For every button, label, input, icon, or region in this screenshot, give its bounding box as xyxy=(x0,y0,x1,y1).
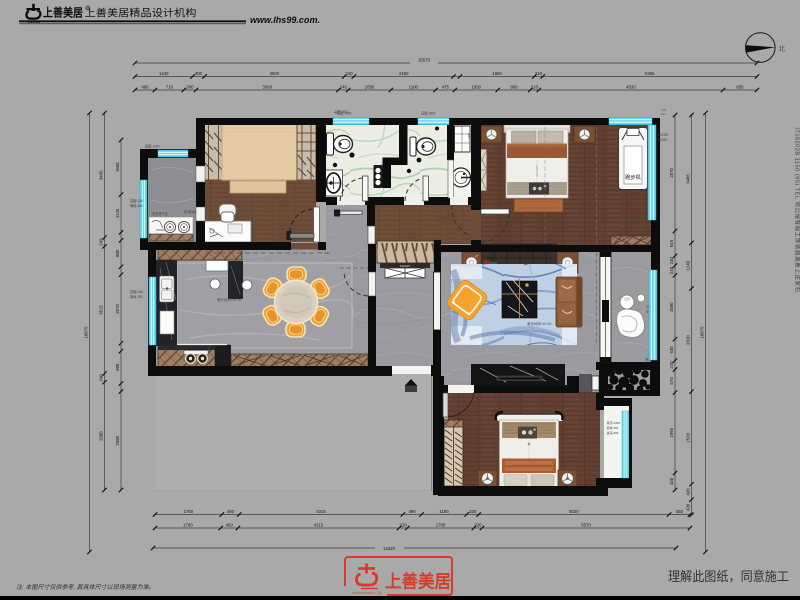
svg-text:1780: 1780 xyxy=(436,522,446,527)
svg-text:2870: 2870 xyxy=(669,168,674,178)
svg-text:2980: 2980 xyxy=(115,435,120,445)
svg-text:4530: 4530 xyxy=(626,84,636,89)
svg-text:240: 240 xyxy=(346,71,354,76)
svg-text:300: 300 xyxy=(186,84,194,89)
svg-text:高度:C60: 高度:C60 xyxy=(130,198,143,203)
svg-text:320: 320 xyxy=(469,509,477,514)
svg-text:5020: 5020 xyxy=(569,509,579,514)
svg-text:离地:180: 离地:180 xyxy=(130,203,143,208)
svg-text:1050: 1050 xyxy=(365,84,375,89)
svg-text:4315: 4315 xyxy=(316,509,326,514)
svg-text:550: 550 xyxy=(676,509,684,514)
svg-text:15570: 15570 xyxy=(418,58,431,63)
svg-text:420: 420 xyxy=(686,503,691,511)
svg-text:1860: 1860 xyxy=(492,71,502,76)
svg-text:300: 300 xyxy=(467,133,471,139)
svg-text:210: 210 xyxy=(535,71,543,76)
svg-text:上善美居: 上善美居 xyxy=(385,572,451,592)
svg-text:高度:1500: 高度:1500 xyxy=(145,144,160,149)
svg-text:490: 490 xyxy=(141,84,149,89)
svg-text:220: 220 xyxy=(474,522,482,527)
svg-text:420: 420 xyxy=(669,477,674,485)
svg-text:过道地坪:+20: 过道地坪:+20 xyxy=(437,215,458,220)
svg-text:240: 240 xyxy=(669,266,674,274)
svg-text:卧室地坪:+20: 卧室地坪:+20 xyxy=(560,217,581,222)
svg-text:2490: 2490 xyxy=(399,71,409,76)
svg-text:餐厅地坪:±0.00: 餐厅地坪:±0.00 xyxy=(217,297,241,302)
svg-text:2810: 2810 xyxy=(686,335,691,345)
svg-text:240: 240 xyxy=(99,374,104,382)
svg-text:300: 300 xyxy=(195,71,203,76)
svg-text:高2300: 高2300 xyxy=(658,132,669,137)
svg-text:14320: 14320 xyxy=(383,546,396,551)
svg-text:615: 615 xyxy=(669,239,674,247)
svg-text:3485: 3485 xyxy=(686,174,691,184)
svg-text:3515: 3515 xyxy=(99,305,104,315)
svg-text:离地:180: 离地:180 xyxy=(130,294,143,299)
svg-text:1100: 1100 xyxy=(409,84,419,89)
svg-text:3500: 3500 xyxy=(262,84,272,89)
svg-text:3500: 3500 xyxy=(270,71,280,76)
svg-text:240: 240 xyxy=(340,84,348,89)
svg-text:2980: 2980 xyxy=(99,431,104,441)
svg-text:835: 835 xyxy=(736,84,744,89)
svg-text:上善美居: 上善美居 xyxy=(43,5,83,19)
svg-text:1190: 1190 xyxy=(439,509,449,514)
svg-text:SHOES: SHOES xyxy=(400,264,411,268)
svg-text:1050: 1050 xyxy=(472,84,482,89)
svg-text:SHANGSHANMEIJU 美居: SHANGSHANMEIJU 美居 xyxy=(352,591,383,595)
svg-text:客厅地坪:±0.00: 客厅地坪:±0.00 xyxy=(527,321,551,326)
svg-text:180: 180 xyxy=(661,112,666,116)
svg-text:MASTER: MASTER xyxy=(535,165,539,177)
svg-text:240: 240 xyxy=(669,257,674,265)
svg-text:710: 710 xyxy=(166,84,174,89)
svg-text:980: 980 xyxy=(115,363,120,371)
svg-text:卧室地坪:+20: 卧室地坪:+20 xyxy=(500,396,521,401)
svg-text:460: 460 xyxy=(227,509,235,514)
svg-text:2520: 2520 xyxy=(686,433,691,443)
svg-text:IT18202B 1150 (95) TEL 司公限有程工饰: IT18202B 1150 (95) TEL 司公限有程工饰装居美善上庄家石 xyxy=(794,127,800,292)
svg-text:注: 本图尺寸仅供参考, 其具体尺寸以现场测量为准。: 注: 本图尺寸仅供参考, 其具体尺寸以现场测量为准。 xyxy=(16,583,155,591)
svg-text:530: 530 xyxy=(669,346,674,354)
svg-text:420: 420 xyxy=(686,488,691,496)
svg-text:1580: 1580 xyxy=(669,302,674,312)
svg-text:245: 245 xyxy=(99,238,104,246)
svg-text:跑步机: 跑步机 xyxy=(625,173,641,181)
svg-text:www.lhs99.com.: www.lhs99.com. xyxy=(250,15,320,25)
svg-text:理解此图纸，同意施工: 理解此图纸，同意施工 xyxy=(668,569,789,584)
svg-text:10875: 10875 xyxy=(700,326,705,339)
svg-text:1240: 1240 xyxy=(686,260,691,270)
svg-text:空调外机: 空调外机 xyxy=(627,217,641,222)
svg-text:5570: 5570 xyxy=(581,522,591,527)
svg-text:高度:1800: 高度:1800 xyxy=(334,109,349,114)
svg-text:高度:1800: 高度:1800 xyxy=(421,111,436,116)
svg-text:570: 570 xyxy=(669,377,674,385)
svg-text:真高:2300: 真高:2300 xyxy=(607,420,621,425)
svg-text:220: 220 xyxy=(400,522,408,527)
svg-text:3445: 3445 xyxy=(99,170,104,180)
svg-text:1760: 1760 xyxy=(183,522,193,527)
svg-text:2070: 2070 xyxy=(115,304,120,314)
svg-text:475: 475 xyxy=(442,84,450,89)
svg-text:高度:C60: 高度:C60 xyxy=(130,289,143,294)
svg-text:地180: 地180 xyxy=(658,137,667,142)
svg-text:1145: 1145 xyxy=(115,208,120,218)
svg-text:洗衣烘干区: 洗衣烘干区 xyxy=(152,211,169,216)
svg-text:1990: 1990 xyxy=(669,427,674,437)
svg-text:1760: 1760 xyxy=(184,509,194,514)
svg-text:离地:450: 离地:450 xyxy=(607,425,619,430)
svg-text:10875: 10875 xyxy=(84,326,89,339)
svg-text:5365: 5365 xyxy=(645,71,655,76)
svg-text:800: 800 xyxy=(115,249,120,257)
svg-text:1650: 1650 xyxy=(115,162,120,172)
svg-text:490: 490 xyxy=(409,509,417,514)
svg-text:800: 800 xyxy=(510,84,518,89)
svg-text:北: 北 xyxy=(779,45,786,53)
svg-text:460: 460 xyxy=(226,522,234,527)
svg-text:220: 220 xyxy=(669,361,674,369)
svg-text:进深:600: 进深:600 xyxy=(607,430,619,435)
svg-text:4315: 4315 xyxy=(314,522,324,527)
svg-text:1440: 1440 xyxy=(159,71,169,76)
svg-text:210: 210 xyxy=(531,84,539,89)
svg-text:上善美居精品设计机构: 上善美居精品设计机构 xyxy=(85,6,197,19)
